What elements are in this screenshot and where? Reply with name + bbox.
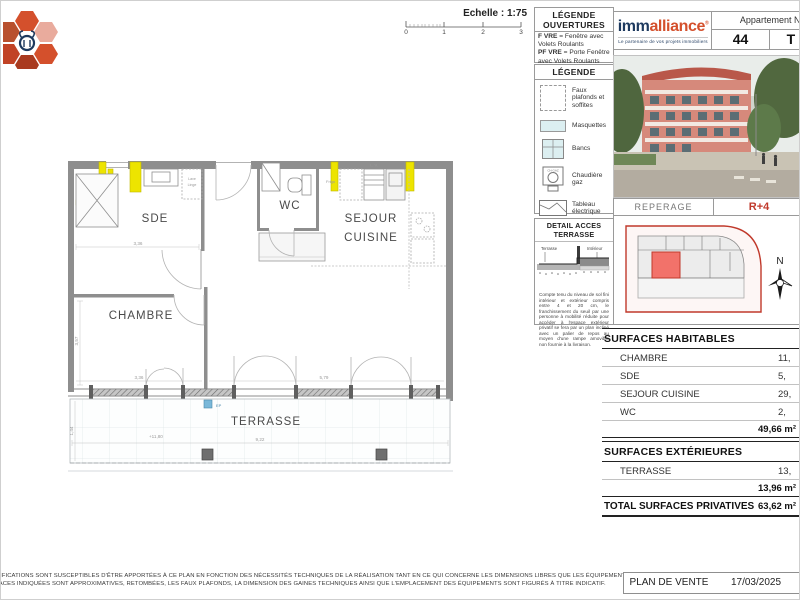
terrace-detail-title: DETAIL ACCES TERRASSE <box>535 219 613 242</box>
reperage-label: REPERAGE <box>614 199 714 216</box>
scale-tick-2: 2 <box>478 29 488 36</box>
apartment-type: T - 2 <box>770 30 800 49</box>
svg-text:+11,80: +11,80 <box>149 434 163 439</box>
surfaces-exterieures-title: SURFACES EXTÉRIEURES <box>602 441 800 462</box>
dashed-square-icon <box>538 85 568 111</box>
svg-text:5,79: 5,79 <box>320 375 329 380</box>
window-band <box>68 385 453 399</box>
scale-label: Echelle : 1:75 <box>396 8 531 19</box>
table-row: CHAMBRE11, <box>602 349 800 367</box>
legend-item-bancs: Bancs <box>535 135 613 163</box>
doc-date-box: 17/03/2025 <box>712 572 800 594</box>
svg-text:CH GAZ: CH GAZ <box>547 169 559 173</box>
masquette-icon <box>538 120 568 132</box>
hex-top <box>15 11 39 31</box>
room-label-sde: SDE <box>142 213 169 225</box>
scale-bar: Echelle : 1:75 0 1 2 3 <box>396 8 531 40</box>
legend-openings-title1: LÉGENDE <box>535 8 613 20</box>
electric-panel-icon <box>538 200 568 216</box>
svg-text:9,22: 9,22 <box>256 437 265 442</box>
key-plan-box: N <box>613 215 800 325</box>
svg-text:Terrasse: Terrasse <box>541 246 558 251</box>
legend-box: LÉGENDE Faux plafonds et soffites Masque… <box>534 64 614 214</box>
svg-text:N: N <box>776 256 783 267</box>
table-row: SEJOUR CUISINE29, <box>602 385 800 403</box>
north-compass-icon: N <box>768 256 792 300</box>
footer-disclaimer: ODIFICATIONS SONT SUSCEPTIBLES D'ÊTRE AP… <box>0 573 631 587</box>
ep-label: EP <box>216 403 222 408</box>
table-row: WC2, <box>602 403 800 421</box>
company-logo <box>3 7 63 69</box>
floor-badge: R+4 <box>714 199 800 216</box>
scale-ruler <box>396 21 531 31</box>
brand-box: immalliance® Le partenaire de vos projet… <box>613 11 713 50</box>
legend-openings-title2: OUVERTURES <box>535 20 613 32</box>
legend-openings-text: F VRE = Fenêtre avec Volets RoulantsPF V… <box>535 32 613 67</box>
highlighted-unit <box>652 252 680 278</box>
scale-tick-3: 3 <box>516 29 526 36</box>
hex-bottom <box>15 55 39 69</box>
terrace-area <box>68 399 453 471</box>
key-plan: N <box>614 216 800 322</box>
room-label-sejour-2: CUISINE <box>344 232 398 244</box>
frigo-label: Frigo <box>326 179 336 184</box>
legend-item-faux-plafonds: Faux plafonds et soffites <box>535 80 613 116</box>
legend-title: LÉGENDE <box>535 65 613 80</box>
apartment-label: Appartement N° <box>712 12 800 30</box>
banc-icon <box>538 139 568 159</box>
floor-plan: Lave Linge Frigo L. V. <box>56 149 466 479</box>
terrace-detail-diagram: Terrasse Intérieur <box>535 242 611 286</box>
room-label-chambre: CHAMBRE <box>109 310 174 322</box>
legend-item-chaudiere: CH GAZ Chaudière gaz <box>535 163 613 195</box>
room-label-sejour-1: SEJOUR <box>345 213 398 225</box>
hex-top-right <box>34 22 58 42</box>
svg-text:3,36: 3,36 <box>135 375 144 380</box>
plan-de-vente-sheet: Echelle : 1:75 0 1 2 3 LÉGENDE OUVERTURE… <box>0 0 800 600</box>
room-label-terrasse: TERRASSE <box>231 416 301 428</box>
table-row: TERRASSE13, <box>602 462 800 480</box>
door-swings <box>146 165 411 387</box>
apartment-box: Appartement N° 44 T - 2 <box>711 11 800 50</box>
hex-bottom-right <box>34 44 58 64</box>
lave-vaisselle-label: L. V. <box>370 163 378 168</box>
brand-wordmark: immalliance® <box>618 18 709 36</box>
svg-text:1,44: 1,44 <box>69 426 74 435</box>
terrace-access-detail-box: DETAIL ACCES TERRASSE Terrasse Intérieur… <box>534 218 614 325</box>
habitables-total-row: 49,66 m² <box>602 421 800 438</box>
surfaces-habitables-title: SURFACES HABITABLES <box>602 328 800 349</box>
exterieures-total-row: 13,96 m² <box>602 480 800 497</box>
scale-tick-0: 0 <box>401 29 411 36</box>
svg-text:Intérieur: Intérieur <box>587 246 603 251</box>
bee-icon <box>20 36 34 50</box>
apartment-number: 44 <box>712 30 770 49</box>
scale-tick-1: 1 <box>439 29 449 36</box>
svg-text:3,57: 3,57 <box>74 336 79 345</box>
building-photo <box>613 55 800 198</box>
boiler-icon: CH GAZ <box>538 166 568 192</box>
surfaces-panel: SURFACES HABITABLES CHAMBRE11, SDE5, SEJ… <box>602 328 800 517</box>
lave-linge-label2: Linge <box>188 183 197 187</box>
table-row: SDE5, <box>602 367 800 385</box>
room-labels: SDE WC SEJOUR CUISINE CHAMBRE TERRASSE <box>109 200 398 428</box>
legend-openings-box: LÉGENDE OUVERTURES F VRE = Fenêtre avec … <box>534 7 614 63</box>
doc-type-box: PLAN DE VENTE <box>623 572 715 594</box>
legend-item-masquettes: Masquettes <box>535 116 613 135</box>
room-label-wc: WC <box>279 200 300 212</box>
svg-text:3,36: 3,36 <box>134 241 143 246</box>
total-privatives-row: TOTAL SURFACES PRIVATIVES63,62 m² <box>602 497 800 517</box>
brand-tagline: Le partenaire de vos projets immobiliers <box>618 37 707 44</box>
lave-linge-label1: Lave <box>188 177 196 181</box>
